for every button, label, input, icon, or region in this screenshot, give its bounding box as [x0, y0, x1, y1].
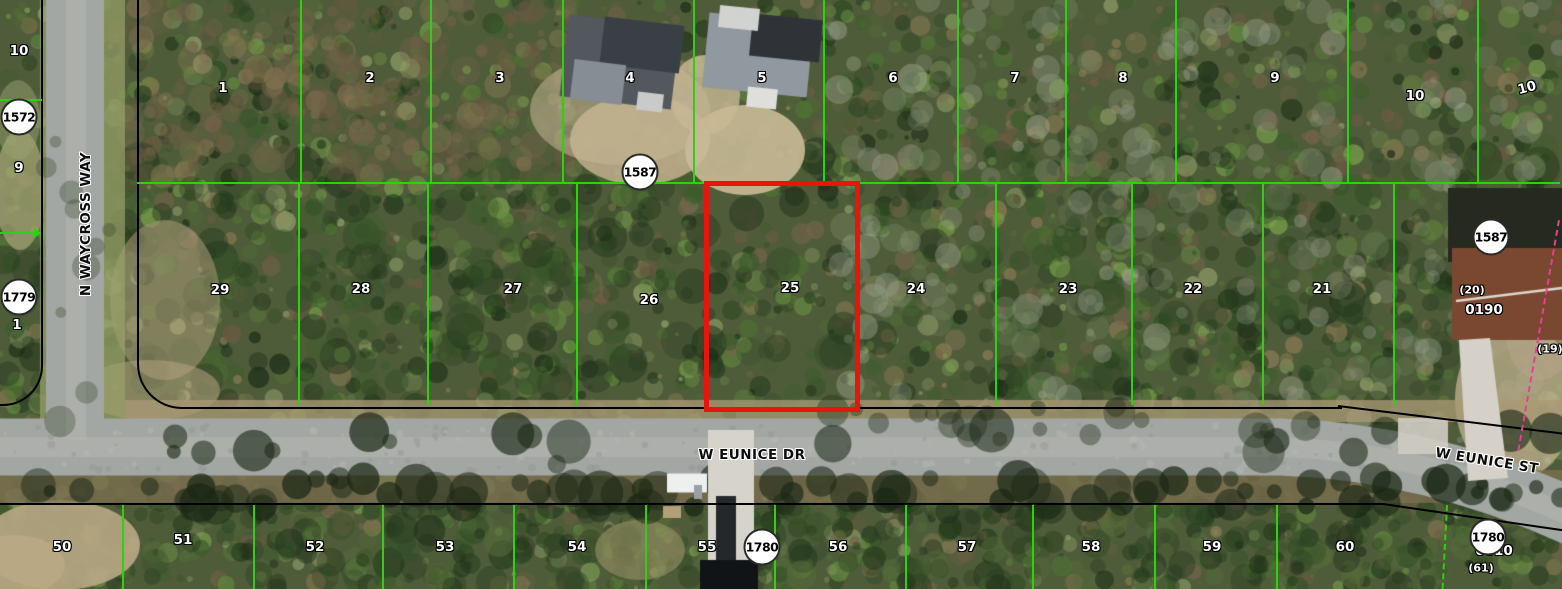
parcel-boundary-line [957, 0, 959, 183]
parcel-boundary-line [1154, 505, 1156, 589]
parcel-boundary-line [513, 505, 515, 589]
parcel-boundary-line [300, 0, 302, 183]
block-number-badge: 1779 [1, 279, 38, 316]
lot-number-label: 29 [211, 282, 230, 298]
lot-number-label: 5 [757, 70, 766, 86]
lot-number-label: 57 [958, 539, 977, 555]
block-number-badge: 1572 [1, 99, 38, 136]
lot-number-label: 6 [888, 70, 897, 86]
road-edge-line-waycross-west [0, 0, 43, 406]
parcel-boundary-line [427, 183, 429, 405]
parcel-annotation-label: (19) [1537, 343, 1562, 356]
lot-number-label: 27 [504, 281, 523, 297]
parcel-boundary-line [1262, 183, 1264, 405]
lot-number-label: 53 [436, 539, 455, 555]
parcel-boundary-line [298, 183, 300, 405]
lot-number-label: 50 [53, 539, 72, 555]
parcel-boundary-line [122, 505, 124, 589]
road-edge-line-eunice-south [0, 503, 1385, 505]
selected-parcel-outline[interactable] [704, 181, 860, 412]
parcel-boundary-line [562, 0, 564, 183]
parcel-boundary-line [995, 183, 997, 405]
parcel-annotation-label: (20) [1459, 284, 1484, 297]
lot-number-label: 25 [781, 280, 800, 296]
parcel-boundary-line [1065, 0, 1067, 183]
parcel-boundary-line [253, 505, 255, 589]
lot-number-label: 59 [1203, 539, 1222, 555]
street-name-n-waycross-way: N WAYCROSS WAY [78, 152, 94, 296]
parcel-boundary-line [1175, 0, 1177, 183]
lot-number-label: 52 [306, 539, 325, 555]
lot-number-label: 1 [218, 80, 227, 96]
parcel-annotation-label: (61) [1468, 562, 1493, 575]
parcel-boundary-line [645, 505, 647, 589]
lot-number-label: 1 [12, 317, 21, 333]
lot-number-label: 58 [1082, 539, 1101, 555]
lot-number-label: 23 [1059, 281, 1078, 297]
lot-number-label: 60 [1336, 539, 1355, 555]
lot-number-label: 22 [1184, 281, 1203, 297]
lot-number-label: 51 [174, 532, 193, 548]
parcel-boundary-line [693, 0, 695, 183]
parcel-boundary-line [905, 505, 907, 589]
parcel-boundary-line [576, 183, 578, 405]
lot-number-label: 10 [1406, 88, 1425, 104]
lot-number-label: 8 [1118, 70, 1127, 86]
lot-number-label: 10 [10, 43, 29, 59]
parcel-boundary-line [1477, 0, 1479, 183]
block-number-badge: 1587 [622, 154, 659, 191]
lot-number-label: 55 [698, 539, 717, 555]
parcel-boundary-line [823, 0, 825, 183]
street-name-w-eunice-dr: W EUNICE DR [698, 447, 805, 463]
parcel-boundary-line [1276, 505, 1278, 589]
parcel-boundary-line [0, 232, 40, 234]
lot-number-label: 24 [907, 281, 926, 297]
lot-number-label: 54 [568, 539, 587, 555]
parcel-boundary-line [1032, 505, 1034, 589]
parcel-boundary-line [430, 0, 432, 183]
lot-number-label: 9 [1270, 70, 1279, 86]
lot-number-label: 7 [1010, 70, 1019, 86]
parcel-boundary-line [1131, 183, 1133, 405]
lot-number-label: 9 [14, 160, 23, 176]
parcel-map-viewport: 1234567891010292827262524232221505152535… [0, 0, 1562, 589]
lot-number-label: 2 [365, 70, 374, 86]
block-number-badge: 1780 [1470, 519, 1507, 556]
block-number-badge: 1587 [1473, 219, 1510, 256]
lot-number-label: 56 [829, 539, 848, 555]
parcel-boundary-line [1347, 0, 1349, 183]
lot-number-label: 21 [1313, 281, 1332, 297]
parcel-annotation-label: 0190 [1465, 302, 1503, 318]
lot-number-label: 28 [352, 281, 371, 297]
lot-number-label: 26 [640, 292, 659, 308]
parcel-boundary-line [382, 505, 384, 589]
lot-number-label: 3 [495, 70, 504, 86]
parcel-boundary-line [1393, 183, 1395, 405]
block-number-badge: 1780 [744, 529, 781, 566]
lot-number-label: 4 [625, 70, 634, 86]
